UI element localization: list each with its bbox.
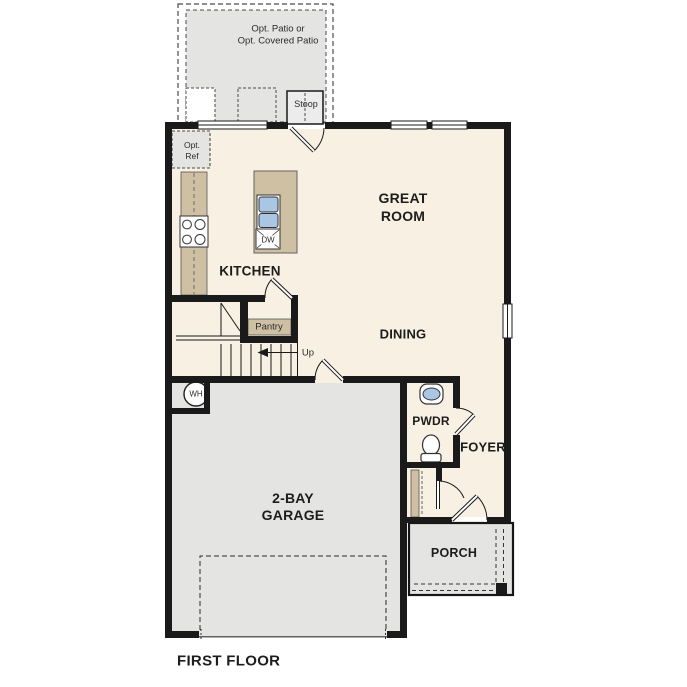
foyer-label: FOYER <box>460 440 506 455</box>
optional-patio-label: Opt. Patio or Opt. Covered Patio <box>238 24 319 47</box>
kitchen-label: KITCHEN <box>219 264 280 279</box>
window <box>198 121 267 129</box>
water-heater-label: WH <box>189 390 202 399</box>
floor-plan: Opt. Patio or Opt. Covered Patio Stoop O… <box>0 0 687 687</box>
window <box>432 121 467 129</box>
pantry-label: Pantry <box>255 322 282 333</box>
optional-ref-label: Opt. Ref <box>184 140 200 162</box>
great-room-label: GREAT ROOM <box>379 189 428 225</box>
porch-column <box>496 583 507 594</box>
dishwasher-label: DW <box>260 236 275 245</box>
garage-label: 2-BAY GARAGE <box>262 490 325 524</box>
cooktop-icon <box>180 216 208 247</box>
powder-room-label: PWDR <box>412 414 449 428</box>
porch-label: PORCH <box>431 546 477 560</box>
sink-icon <box>420 384 443 404</box>
window <box>391 121 427 129</box>
sink-bowl-icon <box>259 197 278 212</box>
stoop-label: Stoop <box>294 99 318 109</box>
garage-apron <box>199 631 387 637</box>
page-title: FIRST FLOOR <box>177 653 280 670</box>
toilet-icon <box>421 435 441 462</box>
floor-plan-drawing <box>0 0 687 687</box>
up-label: Up <box>302 348 314 359</box>
window <box>503 304 512 338</box>
dining-label: DINING <box>380 327 427 342</box>
sink-bowl-icon <box>259 214 278 228</box>
